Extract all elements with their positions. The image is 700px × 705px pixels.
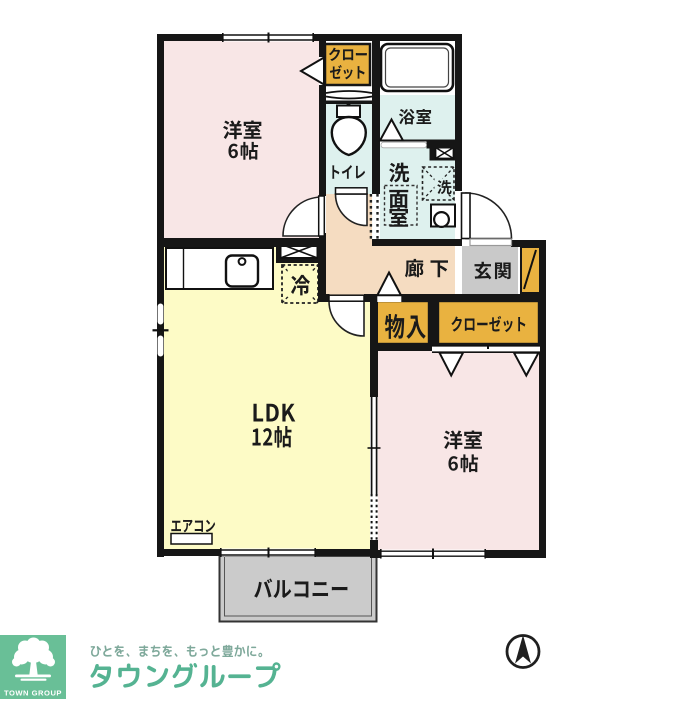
svg-text:TOWN GROUP: TOWN GROUP xyxy=(4,689,62,698)
